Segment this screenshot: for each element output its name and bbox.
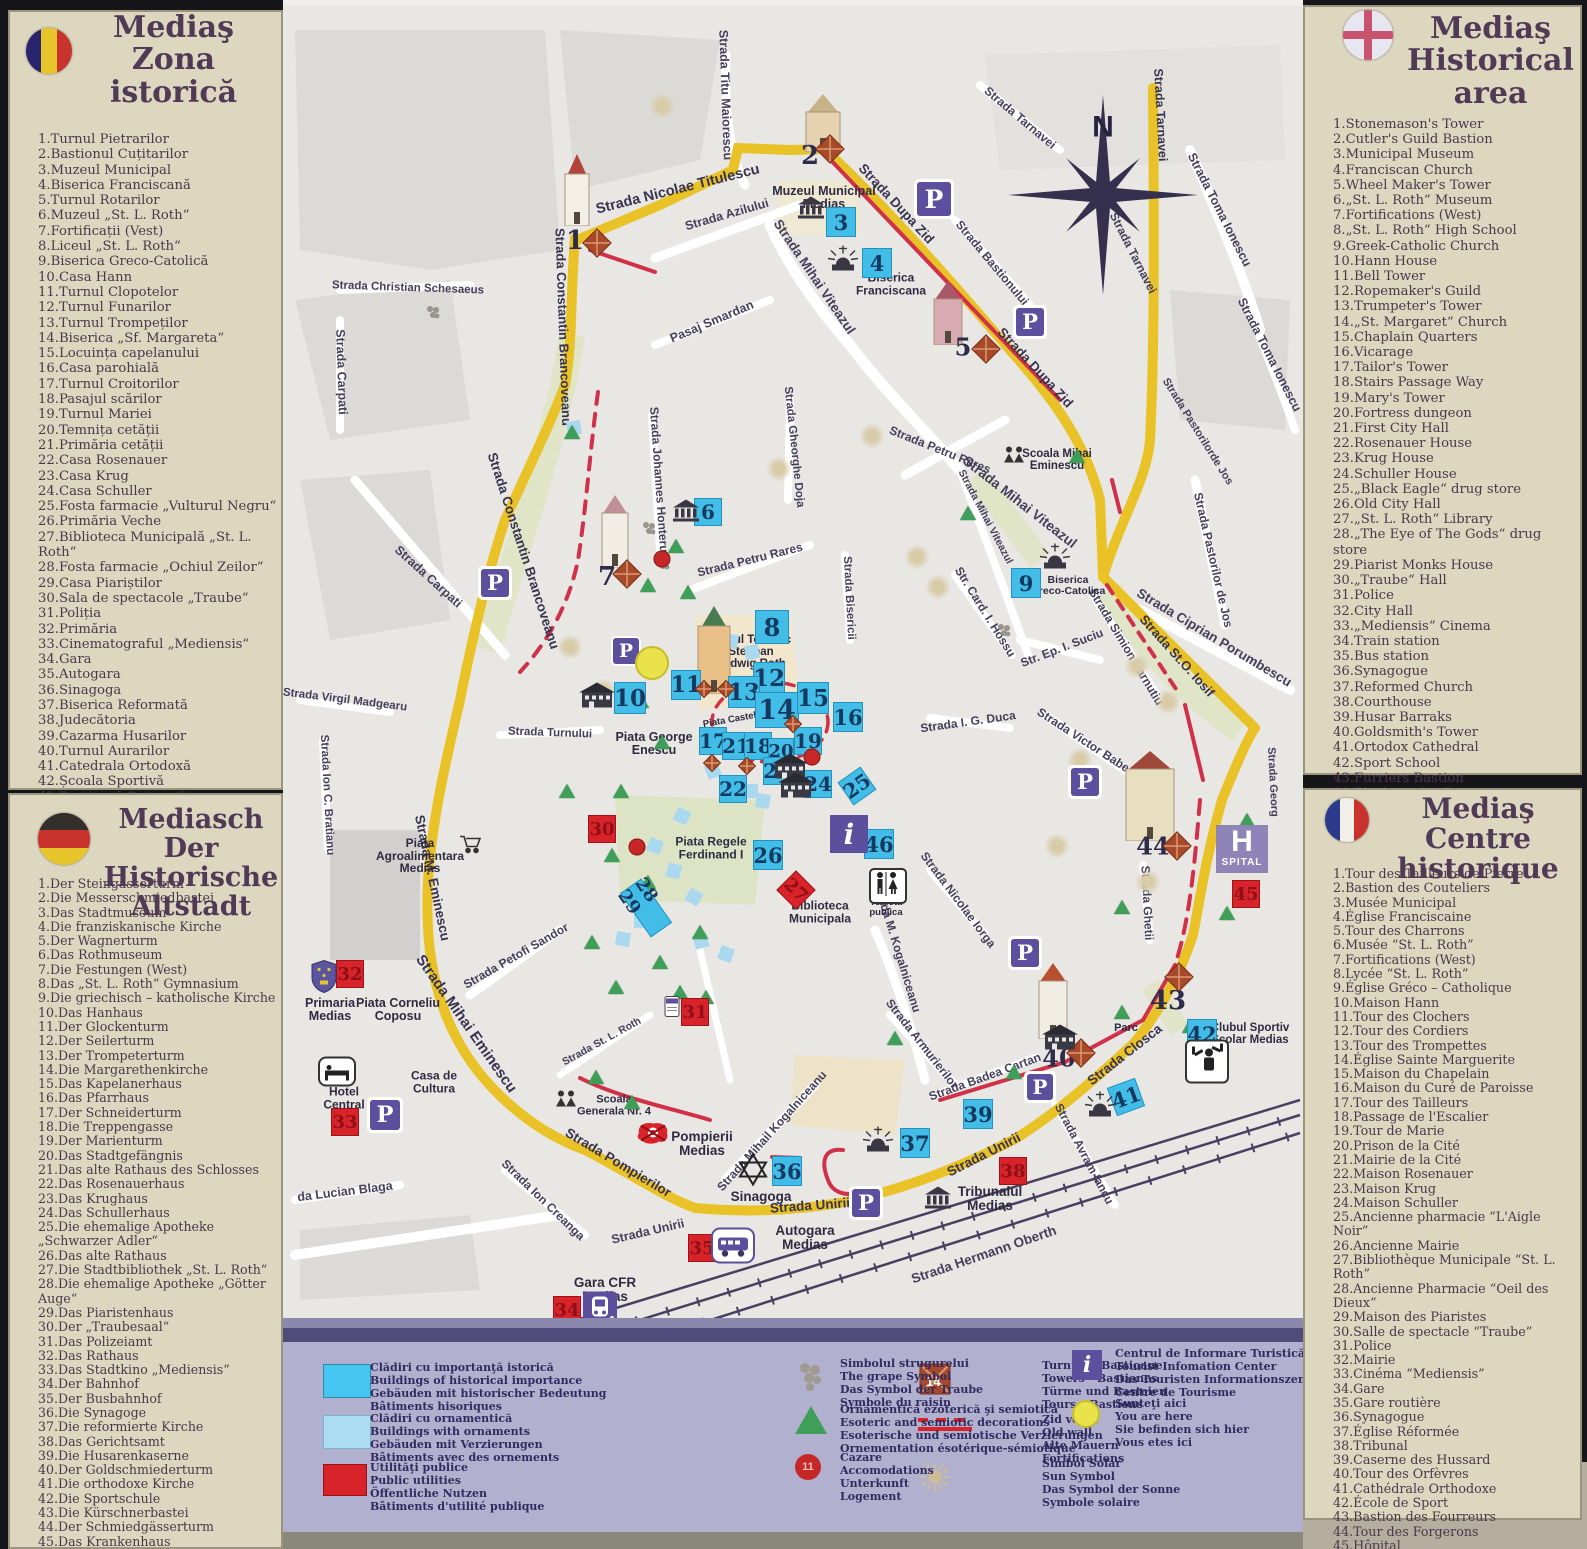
legend-entry-text: Simbol Solar Sun Symbol Das Symbol der S… — [1042, 1458, 1180, 1509]
poi-item: 7.Fortificații (Vest) — [38, 224, 277, 239]
poi-item: 44.Der Schmiedgässerturm — [38, 1520, 277, 1534]
poi-item: 13.Tour des Trompettes — [1333, 1039, 1576, 1053]
poi-item: 37.Église Réformée — [1333, 1425, 1576, 1439]
place-label: Autogara Medias — [775, 1224, 834, 1252]
panel-header: MediaşHistorical area — [1303, 5, 1582, 113]
museum-icon — [796, 196, 826, 225]
poi-item: 35.Gare routière — [1333, 1396, 1576, 1410]
poi-item: 3.Muzeul Municipal — [38, 163, 277, 178]
street-label: Str. Card. I. Hossu — [952, 565, 1017, 659]
tree-icon — [654, 735, 670, 749]
poi-item: 26.Primăria Veche — [38, 514, 277, 529]
panel-title-line: Centre historique — [1378, 824, 1578, 884]
poi-item: 24.Das Schullerhaus — [38, 1206, 277, 1220]
shield-icon — [311, 960, 337, 999]
map-marker-3: 3 — [826, 207, 856, 237]
poi-item: 5.Wheel Maker's Tower — [1333, 178, 1576, 193]
poi-item: 10.Maison Hann — [1333, 996, 1576, 1010]
poi-item: 18.Passage de l'Escalier — [1333, 1110, 1576, 1124]
poi-item: 11.Der Glockenturm — [38, 1020, 277, 1034]
sun-symbol-icon — [1155, 689, 1181, 715]
parking-icon: P — [1024, 1071, 1056, 1103]
info-legend-icon: i — [1072, 1350, 1102, 1380]
school-icon — [1001, 446, 1027, 471]
poi-item: 31.Police — [1333, 1339, 1576, 1353]
poi-item: 1.Stonemason's Tower — [1333, 117, 1576, 132]
poi-item: 14.Église Sainte Marguerite — [1333, 1053, 1576, 1067]
map-marker-4: 4 — [862, 248, 892, 278]
poi-item: 18.Pasajul scărilor — [38, 392, 277, 407]
building-tile — [665, 862, 682, 879]
grape-symbol-icon — [641, 520, 657, 536]
poi-item: 32.Das Rathaus — [38, 1349, 277, 1363]
poi-item: 23.Das Krughaus — [38, 1192, 277, 1206]
legend-entry-text: Utilităţi publice Public utilities Öffen… — [370, 1462, 544, 1513]
poi-item: 25.Die ehemalige Apotheke „Schwarzer Adl… — [38, 1220, 277, 1249]
legend-entry-text: Simbolul strugurelui The grape Symbol Da… — [840, 1358, 983, 1409]
map-marker-15: 15 — [797, 682, 829, 714]
tree-icon — [668, 539, 684, 553]
poi-item: 11.Bell Tower — [1333, 269, 1576, 284]
poi-item: 37.Biserica Reformată — [38, 698, 277, 713]
poi-item: 15.Locuința capelanului — [38, 346, 277, 361]
map-marker-37: 37 — [900, 1128, 930, 1158]
poi-item: 18.Die Treppengasse — [38, 1120, 277, 1134]
poi-item: 16.Casa parohială — [38, 361, 277, 376]
tree-icon — [1069, 449, 1085, 463]
building-tile — [717, 945, 735, 963]
poi-item: 37.Die reformierte Kirche — [38, 1420, 277, 1434]
poi-item: 35.Bus station — [1333, 649, 1576, 664]
poi-item: 39.Die Husarenkaserne — [38, 1449, 277, 1463]
tree-icon — [1219, 906, 1235, 920]
panel-title: MediaschDer HistorischeAltstadt — [103, 805, 279, 922]
poi-item: 13.Trumpeter's Tower — [1333, 299, 1576, 314]
legend-entry-text: Sunteţi aici You are here Sie befinden s… — [1115, 1398, 1249, 1449]
poi-item: 27.„St. L. Roth“ Library — [1333, 512, 1576, 527]
poi-item: 30.Salle de spectacle “Traube” — [1333, 1325, 1576, 1339]
sq-lightblue-legend-icon — [323, 1415, 371, 1449]
legend-frame-top — [283, 1318, 1303, 1328]
sq-red-legend-icon — [323, 1464, 367, 1496]
you-are-here-dot — [635, 646, 669, 680]
poi-item: 40.Tour des Orfèvres — [1333, 1467, 1576, 1481]
tree-icon — [887, 1031, 903, 1045]
poi-item: 27.Bibliothèque Municipale “St. L. Roth” — [1333, 1253, 1576, 1282]
romania-flag — [26, 28, 72, 74]
poi-item: 5.Tour des Charrons — [1333, 924, 1576, 938]
place-label: Casa de Cultura — [411, 1069, 457, 1094]
star-icon — [736, 1153, 770, 1192]
poi-item: 43.Bastion des Fourreurs — [1333, 1510, 1576, 1524]
house-icon — [1040, 1023, 1080, 1058]
map-marker-32: 32 — [336, 960, 364, 988]
poi-item: 41.Cathédrale Orthodoxe — [1333, 1482, 1576, 1496]
map-marker-9: 9 — [1011, 568, 1041, 598]
panel-english: MediaşHistorical area1.Stonemason's Towe… — [1303, 5, 1582, 775]
church-icon — [861, 1126, 895, 1161]
poi-item: 11.Turnul Clopotelor — [38, 285, 277, 300]
accommodation-icon — [654, 551, 671, 568]
map-marker-7: 7 — [598, 562, 616, 592]
poi-item: 16.Maison du Curé de Paroisse — [1333, 1081, 1576, 1095]
tree-icon — [613, 784, 629, 798]
parking-icon: P — [367, 1097, 403, 1133]
poi-item: 36.Die Synagoge — [38, 1406, 277, 1420]
street-label: Strada Virgil Madgearu — [282, 686, 408, 713]
cart-icon — [459, 835, 483, 860]
poi-item: 8.Lycée “St. L. Roth” — [1333, 967, 1576, 981]
board-bottom-edge — [283, 1532, 1303, 1549]
poi-item: 19.Turnul Mariei — [38, 407, 277, 422]
poi-item: 36.Synagogue — [1333, 664, 1576, 679]
panel-header: MediaşZona istorică — [8, 10, 283, 128]
poi-item: 7.Fortifications (West) — [1333, 208, 1576, 223]
triangle-legend-icon — [795, 1406, 827, 1434]
map-marker-1: 1 — [566, 226, 584, 256]
building-tile — [755, 793, 771, 809]
place-label: Piata Agroalimentara Medias — [376, 837, 464, 875]
poi-item: 33.Das Stadtkino „Mediensis“ — [38, 1363, 277, 1377]
building-tile — [646, 837, 664, 855]
poi-item: 26.Old City Hall — [1333, 497, 1576, 512]
poi-item: 13.Turnul Trompeților — [38, 316, 277, 331]
poi-item: 40.Goldsmith's Tower — [1333, 725, 1576, 740]
street-label: Strada Unirii — [610, 1217, 685, 1247]
poi-item: 22.Das Rosenauerhaus — [38, 1177, 277, 1191]
poi-item: 39.Husar Barraks — [1333, 710, 1576, 725]
place-label: Sinagoga — [731, 1190, 792, 1204]
poi-item: 32.Primăria — [38, 622, 277, 637]
poi-item: 31.Police — [1333, 588, 1576, 603]
street-label: Strada Carpati — [333, 329, 349, 415]
poi-item: 19.Mary's Tower — [1333, 391, 1576, 406]
sun-symbol-icon — [649, 93, 675, 119]
map-marker-36: 36 — [772, 1156, 802, 1186]
poi-item: 9.Greek-Catholic Church — [1333, 239, 1576, 254]
church-icon — [1038, 543, 1072, 578]
place-label: Pompierii Medias — [671, 1130, 733, 1158]
map-marker-31: 31 — [681, 998, 709, 1026]
church-icon — [1083, 1091, 1117, 1126]
poi-item: 30.Sala de spectacole „Traube“ — [38, 591, 277, 606]
panel-header: MediaschDer HistorischeAltstadt — [8, 793, 283, 873]
poi-item: 23.Krug House — [1333, 451, 1576, 466]
place-label: Piata Corneliu Coposu — [356, 997, 440, 1023]
street-label: Strada Ion C. Bratianu — [318, 734, 336, 855]
hospital-letter: H — [1216, 827, 1268, 857]
street-label: da Lucian Blaga — [297, 1180, 394, 1205]
poi-item: 21.Mairie de la Cité — [1333, 1153, 1576, 1167]
poi-item: 40.Der Goldschmiederturm — [38, 1463, 277, 1477]
legend-entry-text: Ornamentică ezoterică şi semiotică Esote… — [840, 1404, 1103, 1455]
poi-item: 26.Das alte Rathaus — [38, 1249, 277, 1263]
map-marker-22: 22 — [719, 775, 747, 803]
tree-icon — [680, 585, 696, 599]
poi-item: 29.Maison des Piaristes — [1333, 1310, 1576, 1324]
map-marker-45: 45 — [1232, 880, 1260, 908]
tree-icon — [584, 935, 600, 949]
legend-entry-text: Clădiri cu importanţă istorică Buildings… — [370, 1362, 606, 1413]
legend-entry-text: Cazare Accomodations Unterkunft Logement — [840, 1452, 934, 1503]
tree-icon — [588, 1070, 604, 1084]
grape-legend-icon — [795, 1360, 825, 1399]
poi-item: 10.Hann House — [1333, 254, 1576, 269]
poi-item: 38.Judecătoria — [38, 713, 277, 728]
poi-item: 28.Die ehemalige Apotheke „Götter Auge“ — [38, 1277, 277, 1306]
poi-item: 38.Tribunal — [1333, 1439, 1576, 1453]
sun-symbol-icon — [859, 423, 885, 449]
poi-item: 25.Ancienne pharmacie “L'Aigle Noir” — [1333, 1210, 1576, 1239]
street-label: Strada Turnului — [508, 726, 592, 741]
poi-item: 4.Biserica Franciscană — [38, 178, 277, 193]
poi-item: 12.Der Seilerturm — [38, 1034, 277, 1048]
poi-item: 33.„Mediensis“ Cinema — [1333, 619, 1576, 634]
panel-header: MediaşCentre historique — [1303, 788, 1582, 863]
poi-item: 21.First City Hall — [1333, 421, 1576, 436]
tree-icon — [604, 848, 620, 862]
tree-icon — [652, 955, 668, 969]
poi-item: 34.Der Bahnhof — [38, 1377, 277, 1391]
poi-item: 6.Das Rothmuseum — [38, 948, 277, 962]
map-marker-28-29: 28 29 — [620, 878, 672, 937]
building-tile — [615, 931, 631, 947]
school-icon — [553, 1090, 579, 1115]
poi-item: 17.Tour des Tailleurs — [1333, 1096, 1576, 1110]
poi-item: 33.Cinéma “Mediensis” — [1333, 1367, 1576, 1381]
poi-item: 42.Sport School — [1333, 756, 1576, 771]
poi-item: 43.Die Kürschnerbastei — [38, 1506, 277, 1520]
street-label: Strada Petru Rares — [696, 541, 804, 579]
street-label: Strada Carpati — [392, 544, 464, 611]
place-label: Piata Regele Ferdinand I — [675, 835, 746, 860]
street-label: Str. Ep. I. Suciu — [1019, 626, 1105, 669]
street-label: Strada Georg — [1264, 747, 1279, 817]
poi-item: 20.Das Stadtgefängnis — [38, 1149, 277, 1163]
poi-item: 26.Ancienne Mairie — [1333, 1239, 1576, 1253]
parking-icon: P — [914, 179, 954, 219]
street-label: Strada Christian Schesaeus — [332, 279, 484, 296]
poi-item: 15.Maison du Chapelain — [1333, 1067, 1576, 1081]
poi-item: 38.Das Gerichtsamt — [38, 1435, 277, 1449]
poi-item: 11.Tour des Clochers — [1333, 1010, 1576, 1024]
poi-item: 42.Școala Sportivă — [38, 774, 277, 789]
poi-item: 12.Turnul Funarilor — [38, 300, 277, 315]
police-icon — [664, 996, 680, 1023]
poi-item: 22.Maison Rosenauer — [1333, 1167, 1576, 1181]
sun-symbol-icon — [1135, 869, 1161, 895]
sun-symbol-icon — [925, 574, 951, 600]
poi-item: 34.Gara — [38, 652, 277, 667]
poi-item: 27.Die Stadtbibliothek „St. L. Roth“ — [38, 1263, 277, 1277]
poi-item: 10.Casa Hann — [38, 270, 277, 285]
tower-bastion-icon — [581, 227, 612, 258]
poi-item: 31.Das Polizeiamt — [38, 1335, 277, 1349]
poi-item: 33.Cinematograful „Mediensis“ — [38, 637, 277, 652]
panel-title-line: Altstadt — [103, 892, 279, 921]
poi-item: 28.Fosta farmacie „Ochiul Zeilor“ — [38, 560, 277, 575]
building-tile — [684, 887, 703, 906]
poi-item: 7.Die Festungen (West) — [38, 963, 277, 977]
poi-list: 1.Tour des Tailleurs de Pierre2.Bastion … — [1303, 867, 1582, 1549]
poi-item: 24.Maison Schuller — [1333, 1196, 1576, 1210]
place-label: Parc — [1114, 1023, 1138, 1035]
circle-yellow-legend-icon — [1072, 1400, 1100, 1428]
sun-symbol-icon — [1124, 653, 1150, 679]
street-label: Strada Hermann Oberth — [910, 1224, 1059, 1287]
panel-title-line: Der Historische — [103, 834, 279, 892]
tree-icon — [624, 1095, 640, 1109]
place-label: Primaria Medias — [305, 997, 355, 1023]
poi-item: 15.Chaplain Quarters — [1333, 330, 1576, 345]
house-icon — [776, 771, 816, 806]
poi-item: 1.Turnul Pietrarilor — [38, 132, 277, 147]
poi-item: 3.Musée Municipal — [1333, 896, 1576, 910]
map-marker-38: 38 — [999, 1157, 1027, 1185]
sun-symbol-icon — [1044, 833, 1070, 859]
poi-item: 23.Maison Krug — [1333, 1182, 1576, 1196]
poi-item: 32.Mairie — [1333, 1353, 1576, 1367]
street-label: Strada Constantin Brancoveanu — [553, 228, 574, 426]
street-label: Strada St. L. Roth — [561, 1016, 643, 1068]
parking-icon: P — [849, 1186, 883, 1220]
poi-item: 16.Das Pfarrhaus — [38, 1091, 277, 1105]
poi-item: 43.Furriers Bastion — [1333, 771, 1576, 786]
poi-item: 21.Das alte Rathaus des Schlosses — [38, 1163, 277, 1177]
poi-item: 9.Église Gréco – Catholique — [1333, 981, 1576, 995]
poi-item: 37.Reformed Church — [1333, 680, 1576, 695]
museum-icon — [671, 499, 701, 528]
building-tile — [744, 644, 760, 660]
toilet-icon — [869, 868, 907, 904]
poi-item: 34.Gare — [1333, 1382, 1576, 1396]
street-label: Strada Ion Creanga — [499, 1157, 587, 1242]
poi-list: 1.Turnul Pietrarilor2.Bastionul Cuțitari… — [8, 132, 283, 851]
panel-title: MediaşCentre historique — [1378, 794, 1578, 885]
poi-item: 40.Turnul Aurarilor — [38, 744, 277, 759]
tourist-map-sign: Strada Titu MaiorescuStrada Nicolae Titu… — [0, 0, 1587, 1549]
germany-flag — [38, 813, 90, 865]
poi-item: 29.Das Piaristenhaus — [38, 1306, 277, 1320]
poi-item: 31.Poliția — [38, 606, 277, 621]
poi-item: 6.Muzeul „St. L. Roth“ — [38, 208, 277, 223]
bed-icon — [318, 1057, 356, 1092]
map-marker-30: 30 — [588, 815, 616, 843]
tree-icon — [1006, 1065, 1022, 1079]
poi-item: 9.Biserica Greco-Catolică — [38, 254, 277, 269]
poi-item: 17.Der Schneiderturm — [38, 1106, 277, 1120]
poi-item: 27.Biblioteca Municipală „St. L. Roth“ — [38, 530, 277, 561]
grape-symbol-icon — [996, 622, 1012, 638]
poi-item: 2.Cutler's Guild Bastion — [1333, 132, 1576, 147]
poi-item: 30.Der „Traubesaal“ — [38, 1320, 277, 1334]
poi-list: 1.Stonemason's Tower2.Cutler's Guild Bas… — [1303, 117, 1582, 832]
poi-item: 22.Casa Rosenauer — [38, 453, 277, 468]
panel-title: MediaşHistorical area — [1403, 13, 1578, 110]
poi-list: 1.Der Steingässerturm2.Die Messerschmied… — [8, 877, 283, 1549]
street-label: Strada Titu Maiorescu — [716, 30, 734, 161]
poi-item: 5.Turnul Rotarilor — [38, 193, 277, 208]
panel-german: MediaschDer HistorischeAltstadt1.Der Ste… — [8, 793, 283, 1549]
tree-icon — [1114, 900, 1130, 914]
panel-title: MediaşZona istorică — [68, 12, 279, 109]
street-label: Strada Bisericii — [841, 556, 857, 640]
poi-item: 14.Biserica „Sf. Margareta“ — [38, 331, 277, 346]
poi-item: 28.„The Eye of The Gods“ drug store — [1333, 527, 1576, 557]
poi-item: 21.Primăria cetății — [38, 438, 277, 453]
street-label: Strada I. G. Duca — [920, 709, 1017, 735]
poi-item: 4.Franciscan Church — [1333, 163, 1576, 178]
map-marker-5: 5 — [955, 333, 972, 362]
map-marker-33: 33 — [331, 1108, 359, 1136]
poi-item: 24.Schuller House — [1333, 467, 1576, 482]
poi-item: 41.Ortodox Cathedral — [1333, 740, 1576, 755]
poi-item: 45.Das Krankenhaus — [38, 1535, 277, 1549]
poi-item: 18.Stairs Passage Way — [1333, 375, 1576, 390]
street-label: Strada Toma Ionescu — [1235, 296, 1304, 414]
poi-item: 3.Municipal Museum — [1333, 147, 1576, 162]
panel-title-line: Mediaş — [1378, 794, 1578, 824]
compass-north-label: N — [1092, 111, 1114, 143]
tower-illustration — [1125, 749, 1175, 841]
tower-illustration — [601, 493, 629, 568]
sun-symbol-icon — [557, 634, 583, 660]
poi-item: 23.Casa Krug — [38, 469, 277, 484]
poi-item: 41.Catedrala Ortodoxă — [38, 759, 277, 774]
firetruck-icon — [635, 1120, 671, 1153]
house-icon — [577, 681, 617, 716]
poi-item: 5.Der Wagnerturm — [38, 934, 277, 948]
map-marker-39: 39 — [963, 1099, 993, 1129]
panel-title-line: Mediaş — [1403, 13, 1578, 45]
poi-item: 28.Ancienne Pharmacie “Oeil des Dieux” — [1333, 1282, 1576, 1311]
poi-item: 42.École de Sport — [1333, 1496, 1576, 1510]
uk-flag — [1343, 10, 1393, 60]
map-marker-25: 25 — [838, 767, 877, 806]
poi-item: 36.Sinagoga — [38, 683, 277, 698]
poi-item: 39.Caserne des Hussard — [1333, 1453, 1576, 1467]
poi-item: 14.„St. Margaret“ Church — [1333, 315, 1576, 330]
map-marker-8: 8 — [755, 610, 789, 644]
poi-item: 41.Die orthodoxe Kirche — [38, 1477, 277, 1491]
poi-item: 22.Rosenauer House — [1333, 436, 1576, 451]
panel-title-line: Historical area — [1403, 45, 1578, 110]
poi-item: 9.Die griechisch – katholische Kirche — [38, 991, 277, 1005]
church-icon — [826, 245, 860, 280]
poi-item: 14.Die Margarethenkirche — [38, 1063, 277, 1077]
map-marker-16: 16 — [833, 702, 863, 732]
street-label: Strada Gheorghe Doja — [782, 386, 807, 508]
poi-item: 25.Fosta farmacie „Vulturul Negru“ — [38, 499, 277, 514]
street-label: Strada Constantin Brancoveanu — [485, 451, 562, 651]
poi-item: 12.Ropemaker's Guild — [1333, 284, 1576, 299]
sun-symbol-icon — [766, 456, 792, 482]
poi-item: 32.City Hall — [1333, 604, 1576, 619]
tree-icon — [692, 925, 708, 939]
legend-entry-text: Clădiri cu ornamentică Buildings with or… — [370, 1413, 559, 1464]
poi-item: 19.Der Marienturm — [38, 1134, 277, 1148]
tree-icon — [960, 506, 976, 520]
map-marker-46: 46 — [864, 829, 894, 859]
poi-item: 30.„Traube“ Hall — [1333, 573, 1576, 588]
poi-item: 29.Piarist Monks House — [1333, 558, 1576, 573]
tree-icon — [608, 980, 624, 994]
poi-item: 8.Liceul „St. L. Roth“ — [38, 239, 277, 254]
poi-item: 10.Das Hanhaus — [38, 1006, 277, 1020]
poi-item: 35.Der Busbahnhof — [38, 1392, 277, 1406]
bus-icon — [711, 1228, 755, 1269]
poi-item: 17.Turnul Croitorilor — [38, 377, 277, 392]
